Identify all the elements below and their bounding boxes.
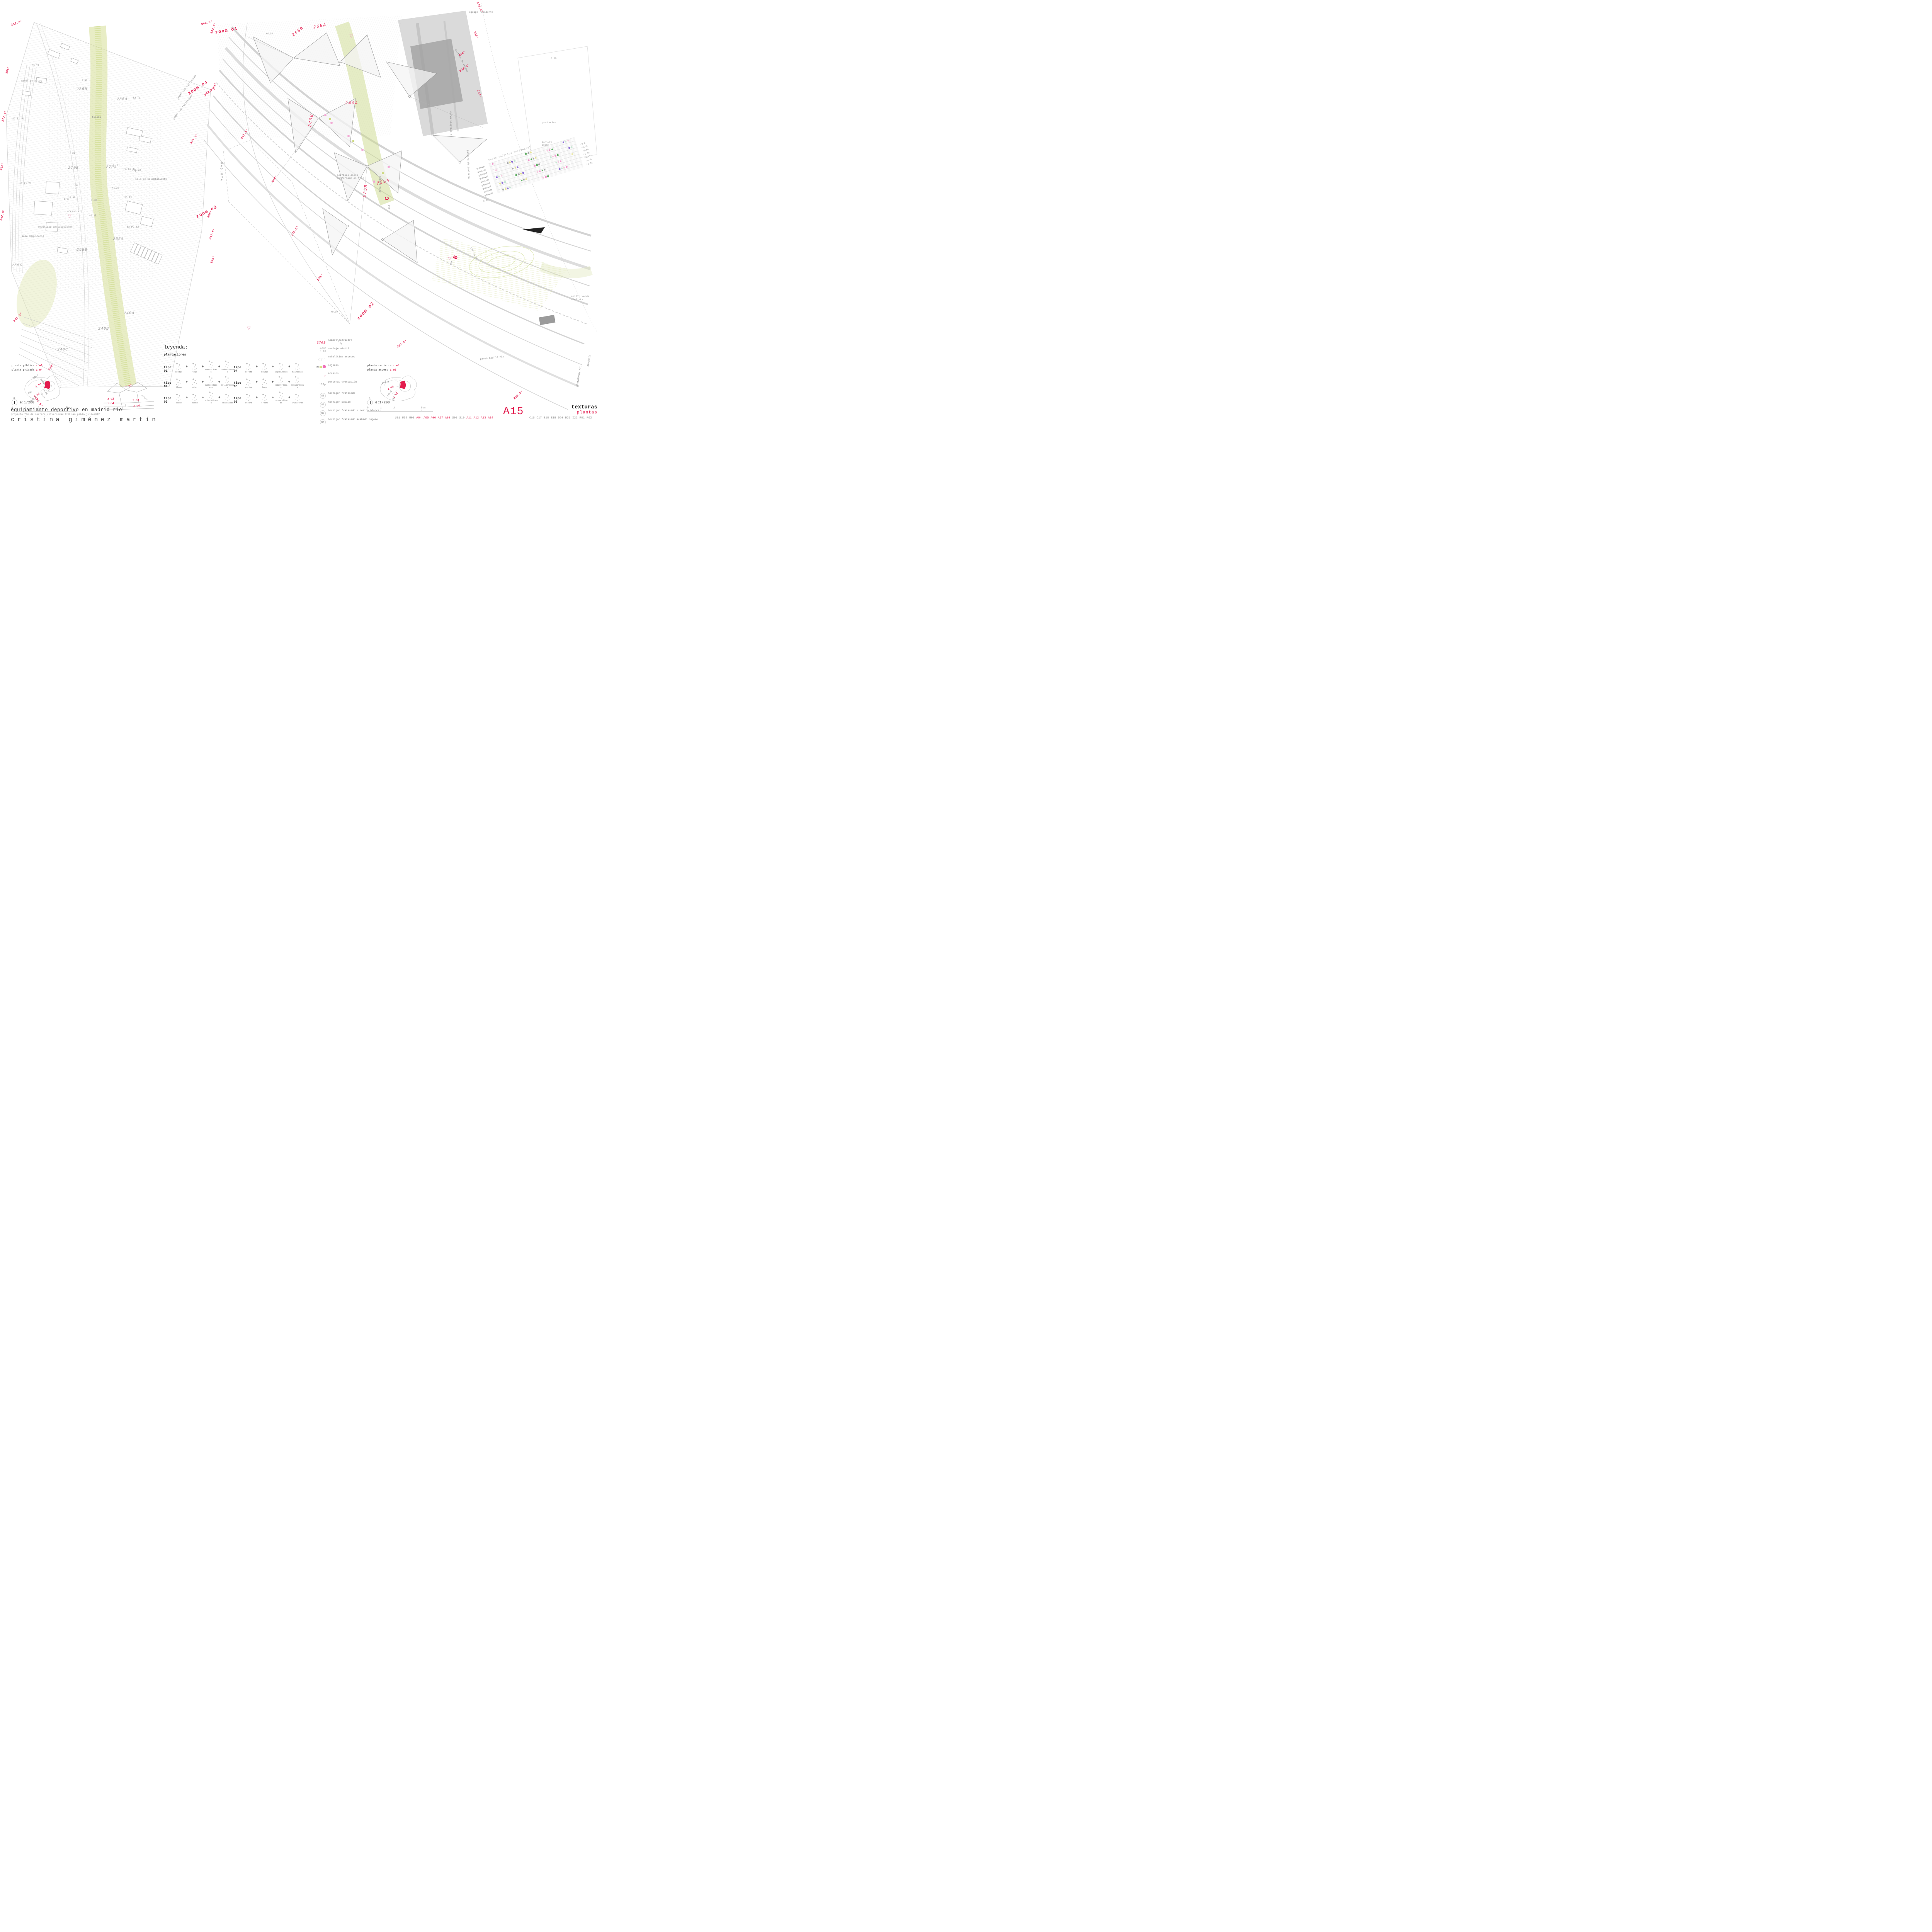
seat-dot (567, 140, 569, 142)
sheet-code: S10 (459, 417, 465, 420)
seat-dot (532, 158, 534, 160)
scalebar-tick-label: 0 (367, 406, 369, 409)
north-compass-icon: n (12, 400, 17, 405)
plant-name: leguminosas (275, 371, 287, 374)
plant-name: poligonáceas (221, 384, 234, 389)
anchor-level: +6.13 (318, 350, 326, 353)
seat-dot (541, 170, 543, 172)
planting-type-code: tipo04 (234, 366, 241, 373)
legend-label: nombre tetraedro (328, 338, 352, 342)
plant-item: boragináceas (291, 374, 304, 389)
plantaciones-grid: tipo01abedul+tejo+amarantáceas+orobancác… (164, 359, 305, 404)
planting-type-number: 03 (164, 401, 171, 404)
seat-dot (556, 154, 559, 156)
plant-sketch-icon (191, 377, 199, 386)
keyplan-zoom-ref: z o2 (390, 369, 396, 372)
plant-sketch-icon (207, 359, 215, 369)
plan-label: seguridad instalaciones (38, 226, 73, 229)
plant-name: papaveráceas (275, 384, 287, 389)
plant-name: amarantáceas (205, 369, 218, 373)
keyplan-header-line: planta acceso z o2 (367, 368, 448, 372)
plant-sketch-icon (245, 377, 252, 386)
seat-dot (509, 161, 511, 163)
plan-label: S3 T1 (32, 64, 39, 67)
legend-icon-cell: S1 (308, 391, 328, 399)
plant-name: encina (242, 387, 255, 389)
plan-label: S3 P2 T2 (127, 226, 139, 229)
keyplan-scale-row: ne:1/200 (12, 400, 34, 405)
seat-dot (528, 159, 530, 161)
seat-dot (534, 165, 536, 167)
plant-name: melojo (259, 371, 271, 374)
plus-separator: + (202, 365, 204, 369)
plan-label: 255C (12, 264, 22, 268)
section-zoom-label: z o2 (125, 384, 132, 388)
seat-dot (522, 172, 524, 174)
material-code-icon: S4 (320, 419, 326, 424)
seat-dot (539, 170, 541, 172)
series-subtitle: plantas (577, 410, 597, 415)
seat-dot (499, 182, 502, 185)
plan-label: S3 T2 T2 (19, 182, 31, 185)
plant-item: haya (259, 377, 271, 389)
evacuation-count: 133p (319, 383, 326, 386)
zone-code-icon: 270B (317, 341, 326, 345)
seat-dot (520, 180, 522, 182)
planting-type-code: tipo06 (234, 397, 241, 404)
sheet-code: U02 (402, 417, 408, 420)
material-code-icon: S1 (320, 393, 326, 399)
zone-code-secondary: 240C (318, 347, 326, 350)
planting-type-code: tipo03 (164, 397, 171, 404)
plan-label: 285A (117, 97, 128, 102)
plan-label: +0.00 (549, 57, 556, 60)
plant-name: ranunculáceas (275, 400, 287, 404)
plant-item: cerezo (242, 361, 255, 374)
legend-row: S4hormigón fratasado acabado rugoso (308, 418, 399, 424)
scalebar-tick (367, 410, 368, 411)
compass-needle (14, 401, 15, 404)
plant-item: melojo (259, 361, 271, 374)
plant-item: papaveráceas (275, 374, 287, 389)
sheet-code: A11 (466, 417, 472, 420)
sheet-codes-after: C16C17E18E19D20D21I22R01R02 (529, 417, 592, 420)
seat-dot (549, 156, 552, 158)
plus-separator: + (256, 396, 258, 400)
plant-name: tejo (189, 371, 201, 374)
sheet-code: A12 (474, 417, 479, 420)
plant-sketch-icon (223, 374, 231, 384)
seat-dot (536, 164, 538, 166)
legend-row: 270Bnombre tetraedro (308, 338, 399, 345)
signage-circle (318, 358, 322, 361)
seat-dot (507, 162, 509, 164)
plant-name: enebro (242, 402, 255, 405)
plan-label: 2.40 (91, 199, 97, 202)
seat-dot (537, 171, 539, 173)
scalebar-tick-label: 1 (380, 406, 382, 409)
plan-label: +1.48 (68, 196, 75, 199)
planting-type-number: 05 (234, 385, 241, 389)
keyplan-plan-name: planta pública (12, 364, 36, 367)
plant-item: leguminosas (275, 361, 287, 374)
plant-item: olmo (189, 377, 201, 389)
plan-label: +1.12 (111, 164, 118, 167)
legend-label: anclaje mástil (328, 347, 349, 350)
compass-needle (370, 401, 371, 404)
plant-sketch-icon (277, 390, 285, 400)
planting-type: tipo02álamo+olmo+quenopodiáceas+poligoná… (164, 374, 234, 389)
seat-dot (500, 175, 502, 177)
plant-sketch-icon (294, 392, 301, 402)
sheet-code: A06 (431, 417, 436, 420)
plus-separator: + (272, 365, 274, 369)
plant-name: euforbiáceas (205, 400, 218, 404)
plan-label: +2.48 (80, 79, 87, 82)
seat-dot (514, 160, 516, 162)
project-subtitle: proyecto fin de carrera_universidad CEU … (11, 413, 158, 416)
seat-dot (507, 187, 509, 189)
sheet-code: E18 (544, 417, 549, 420)
seat-dot (529, 151, 532, 153)
sheet-code: E19 (551, 417, 556, 420)
planting-type-number: 04 (234, 370, 241, 373)
planting-type: tipo01abedul+tejo+amarantáceas+orobancác… (164, 359, 234, 373)
plant-name: abedul (172, 371, 185, 374)
plant-item: enebro (242, 392, 255, 405)
seat-dot (558, 161, 560, 163)
sheet-code: A04 (417, 417, 422, 420)
plant-item: malváceas (291, 361, 304, 374)
keyplan-plan-name: planta acceso (367, 369, 390, 372)
seat-dot (555, 162, 557, 163)
project-title: equipamiento deportivo en madrid río (11, 407, 158, 413)
keyplan-scale: e:1/200 (20, 401, 34, 405)
legend-label: cojines (328, 364, 338, 367)
planting-type-code: tipo02 (164, 382, 171, 389)
plant-item: aliso (172, 392, 185, 405)
seat-dot (565, 141, 567, 143)
plant-sketch-icon (207, 390, 215, 400)
planting-type-number: 01 (164, 370, 171, 373)
plus-separator: + (202, 396, 204, 400)
cushion-green-icon (320, 366, 322, 368)
seat-dot (571, 153, 573, 155)
keyplan-plan-name: planta cubierta (367, 364, 393, 367)
plan-label: porterías (543, 121, 556, 124)
access-triangle-icon: ▽ (324, 374, 326, 378)
plant-item: amarantáceas (205, 359, 218, 373)
plant-sketch-icon (261, 392, 269, 402)
author-name: cristina giménez martín (11, 416, 158, 423)
plant-sketch-icon (277, 361, 285, 371)
north-letter: n (369, 397, 371, 400)
legend-label: hormigón fratasado acabado rugoso (328, 418, 378, 421)
legend-title: leyenda: (164, 344, 305, 350)
title-block: equipamiento deportivo en madrid río pro… (11, 407, 158, 423)
keyplan-header-line: planta privada z o4 (12, 368, 93, 372)
sheet-code: R02 (587, 417, 592, 420)
planting-type: tipo06enebro+fresno+ranunculáceas+crucíf… (234, 390, 304, 404)
plant-item: quenopodiáceas (205, 374, 218, 389)
plan-label: 240A (124, 311, 134, 316)
seat-dot (562, 141, 564, 143)
seat-dot (544, 169, 546, 171)
north-compass-icon: n (367, 400, 373, 405)
keyplan-zoom-ref: z o1 (393, 364, 400, 367)
plant-sketch-icon (261, 377, 269, 386)
keyplan-zoom-ref: z o3 (36, 364, 43, 367)
seat-dot (505, 188, 507, 190)
current-sheet-code: A15 (503, 406, 524, 418)
legend-label: personas evacuación (328, 380, 357, 384)
seat-dot (496, 176, 498, 178)
plan-label: 270B (68, 166, 79, 171)
plan-label: P1 S2 T1 (124, 168, 136, 171)
scalebar-tick (381, 410, 381, 411)
plan-label: 240C (57, 348, 68, 352)
plant-sketch-icon (207, 374, 215, 384)
seat-dot (552, 155, 554, 158)
plus-separator: + (218, 380, 220, 384)
plant-item: crucíferas (291, 392, 304, 405)
plan-label: S2 T1 P1 (12, 117, 24, 121)
sheet-code: D20 (558, 417, 563, 420)
plant-item: encina (242, 377, 255, 389)
legend-icon-cell: ▽ (308, 372, 328, 379)
sheet-code: U01 (395, 417, 400, 420)
plus-separator: + (202, 380, 204, 384)
keyplan-contours (367, 372, 429, 403)
seat-dot (502, 189, 504, 190)
plus-separator: + (288, 380, 290, 384)
plant-name: sauce (189, 402, 201, 405)
plan-label: MAQUETA (219, 162, 223, 182)
series-title: texturas (571, 404, 597, 410)
plan-label: salón de actos (21, 80, 42, 83)
plant-item: álamo (172, 377, 185, 389)
plan-label: 240B (98, 327, 109, 332)
plant-sketch-icon (277, 374, 285, 384)
plan-label: 240A (345, 101, 358, 106)
keyplan-contours (12, 372, 73, 403)
plan-label: ent (388, 205, 391, 209)
plant-item: tejo (189, 361, 201, 374)
plan-label: zona socios (379, 176, 382, 192)
plant-item: salicáceas (221, 392, 234, 405)
plant-sketch-icon (245, 392, 252, 402)
plant-name: malváceas (291, 371, 304, 374)
plant-sketch-icon (293, 374, 301, 384)
seat-dot (561, 167, 563, 170)
plant-name: salicáceas (221, 402, 234, 405)
sheet-code: A13 (481, 417, 486, 420)
plant-sketch-icon (175, 377, 182, 386)
plant-name: quenopodiáceas (205, 384, 218, 389)
plan-label: 255A (113, 237, 124, 242)
legend-icon-cell: S2 (308, 400, 328, 408)
sheet-code: D21 (565, 417, 571, 420)
plan-label: curva isóptica h (449, 111, 452, 135)
plus-separator: + (185, 365, 187, 369)
seat-dot (492, 163, 494, 165)
legend-icon-cell (308, 364, 328, 371)
legend-icon-cell: 270B (308, 338, 328, 345)
plant-name: olmo (189, 387, 201, 389)
legend-icon-cell: bc (308, 355, 328, 362)
seat-dot (551, 148, 553, 150)
seat-dot (498, 175, 500, 177)
plant-name: cerezo (242, 371, 255, 374)
seat-dot (520, 172, 522, 175)
plant-sketch-icon (175, 361, 182, 371)
plan-label: C (384, 197, 391, 200)
legend-row: 240C+6.13anclaje mástil (308, 347, 399, 354)
plant-item: poligonáceas (221, 374, 234, 389)
plus-separator: + (218, 365, 220, 369)
material-code-icon: S2 (320, 402, 326, 408)
keyplan-zoom-ref: z o4 (36, 369, 43, 372)
plan-label: perfiles acero conformado en frío (337, 174, 364, 180)
seat-dot (515, 174, 517, 176)
plant-name: haya (259, 387, 271, 389)
signage-icon: bc (318, 358, 326, 361)
seat-dot (495, 169, 497, 171)
plan-label: +4.19 (266, 32, 273, 35)
plant-item: sauce (189, 392, 201, 405)
plant-sketch-icon (245, 361, 252, 371)
cushion-gray-icon (316, 366, 319, 367)
plant-item: fresno (259, 392, 271, 405)
plus-separator: + (288, 365, 290, 369)
sheet-code: A14 (488, 417, 493, 420)
plant-name: crucíferas (291, 402, 304, 405)
keyplan-left: planta pública z o3planta privada z o429… (12, 364, 93, 414)
sheet-code: A07 (438, 417, 443, 420)
plan-label: sala de calentamiento (135, 178, 167, 181)
plan-label: sala maquinaria (22, 235, 44, 238)
sheet-code: A05 (423, 417, 429, 420)
legend-icon-cell: S3 (308, 409, 328, 416)
north-letter: n (14, 397, 15, 400)
sheet-code: A08 (445, 417, 451, 420)
seat-dot (547, 175, 549, 177)
plan-label: 285B (77, 87, 87, 92)
legend-icon-cell: 240C+6.13 (308, 347, 328, 354)
platform-mark (539, 315, 556, 325)
plan-label: +1.22 (112, 187, 119, 189)
plan-label: acceso vip (67, 210, 82, 213)
seat-dot (549, 149, 551, 151)
plant-item: euforbiáceas (205, 390, 218, 404)
keyplan-header-line: planta cubierta z o1 (367, 364, 448, 368)
plant-name: boragináceas (291, 384, 304, 389)
legend-label: hormigón fratasado (328, 391, 355, 395)
keyplan-header-line: planta pública z o3 (12, 364, 93, 368)
seat-dot (542, 177, 544, 179)
sheet-code: S09 (452, 417, 457, 420)
plant-item: ranunculáceas (275, 390, 287, 404)
plant-sketch-icon (175, 392, 182, 402)
plus-separator: + (218, 396, 220, 400)
planting-type-code: tipo01 (164, 366, 171, 373)
legend-label: hormigón pulido (328, 400, 351, 404)
seat-dot (525, 153, 527, 155)
plan-label: S1 (72, 152, 75, 155)
plus-separator: + (256, 365, 258, 369)
keyplan-highlight-wedge (400, 381, 406, 389)
seat-dot (544, 176, 547, 178)
plus-separator: + (255, 380, 257, 384)
keyplan-highlight-wedge (44, 381, 50, 389)
plan-label: tipo01 (92, 116, 101, 119)
drawing-sheet: zoom o1zoom o4zoom o3zoom o2232.5°285°27… (0, 0, 599, 424)
seat-dot (530, 158, 532, 160)
plant-item: orobancáceas (221, 359, 234, 373)
plant-name: fresno (259, 402, 271, 405)
mast-anchor-icon: 240C+6.13 (318, 347, 326, 352)
section-zoom-label: z o3 (133, 399, 139, 402)
plan-label: +2.35 (89, 214, 96, 217)
legend-label: señalética accesos (328, 355, 355, 359)
seat-dot (570, 146, 573, 148)
seat-dot (504, 181, 506, 183)
plan-label: S2 T1 (133, 97, 141, 100)
plus-separator: + (288, 396, 290, 400)
seat-dot (511, 160, 514, 163)
seat-dot (538, 163, 541, 165)
planting-type: tipo04cerezo+melojo+leguminosas+malvácea… (234, 359, 304, 373)
plan-label: equipo residente (469, 11, 493, 14)
legend-row: bcseñalética accesos (308, 355, 399, 362)
seat-dot (525, 178, 527, 180)
plant-name: álamo (172, 387, 185, 389)
plus-separator: + (185, 380, 187, 384)
plus-separator: + (272, 396, 274, 400)
sheet-code: U03 (409, 417, 415, 420)
seat-dot (517, 166, 519, 168)
keyplan-scale: e:1/200 (375, 401, 390, 405)
seat-dot (568, 147, 570, 149)
seat-dot (560, 160, 562, 162)
sheet-index: texturas plantas U01U02U03A04A05A06A07A0… (393, 404, 598, 423)
plan-label: 255B (77, 248, 87, 253)
keyplan-scale-row: ne:1/200 (367, 400, 390, 405)
keyplan-header: planta cubierta z o1planta acceso z o2 (367, 364, 448, 372)
cushion-pink-icon (323, 365, 326, 368)
seat-dot (514, 167, 516, 169)
plant-sketch-icon (294, 361, 301, 371)
legend-icon-cell: S4 (308, 418, 328, 424)
planting-type-code: tipo05 (234, 382, 241, 389)
plan-label: 1.98 (64, 198, 69, 201)
plant-item: abedul (172, 361, 185, 374)
plus-separator: + (186, 396, 188, 400)
plant-sketch-icon (191, 392, 199, 402)
material-code-icon: S3 (320, 410, 326, 416)
legend-subtitle: plantaciones (164, 353, 305, 357)
seat-dot (527, 152, 529, 154)
plant-sketch-icon (261, 361, 269, 371)
plant-sketch-icon (223, 359, 231, 369)
sheet-code: C17 (537, 417, 542, 420)
plan-label: S3 T2 (124, 196, 132, 199)
seat-dot (502, 182, 504, 184)
plant-sketch-icon (224, 392, 231, 402)
seat-dot (523, 179, 525, 181)
planting-type: tipo05encina+haya+papaveráceas+boraginác… (234, 374, 304, 389)
sheet-code: I22 (572, 417, 578, 420)
